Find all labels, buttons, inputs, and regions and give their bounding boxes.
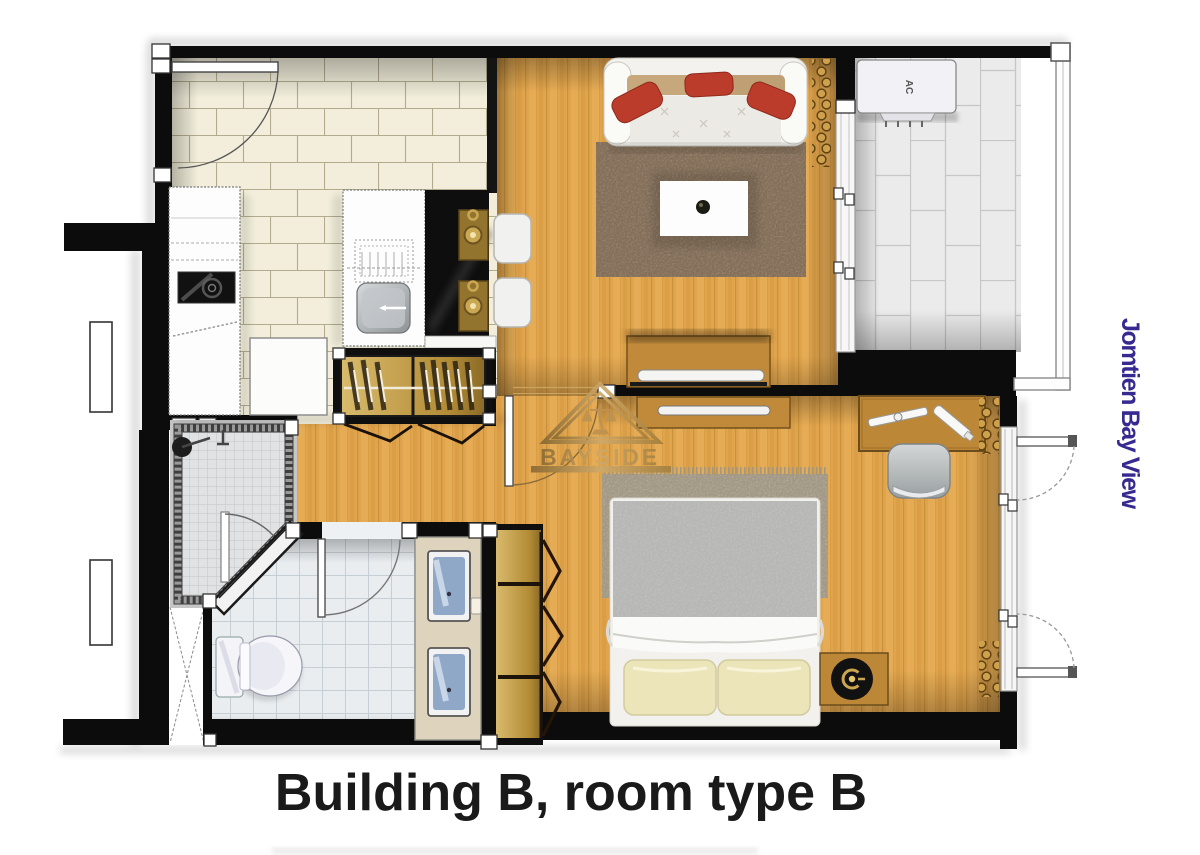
svg-text:BAYSIDE: BAYSIDE — [540, 444, 660, 470]
svg-text:Building B, room type B: Building B, room type B — [275, 764, 867, 822]
svg-text:Jomtien Bay View: Jomtien Bay View — [1116, 318, 1144, 510]
svg-text:AC: AC — [903, 80, 914, 94]
